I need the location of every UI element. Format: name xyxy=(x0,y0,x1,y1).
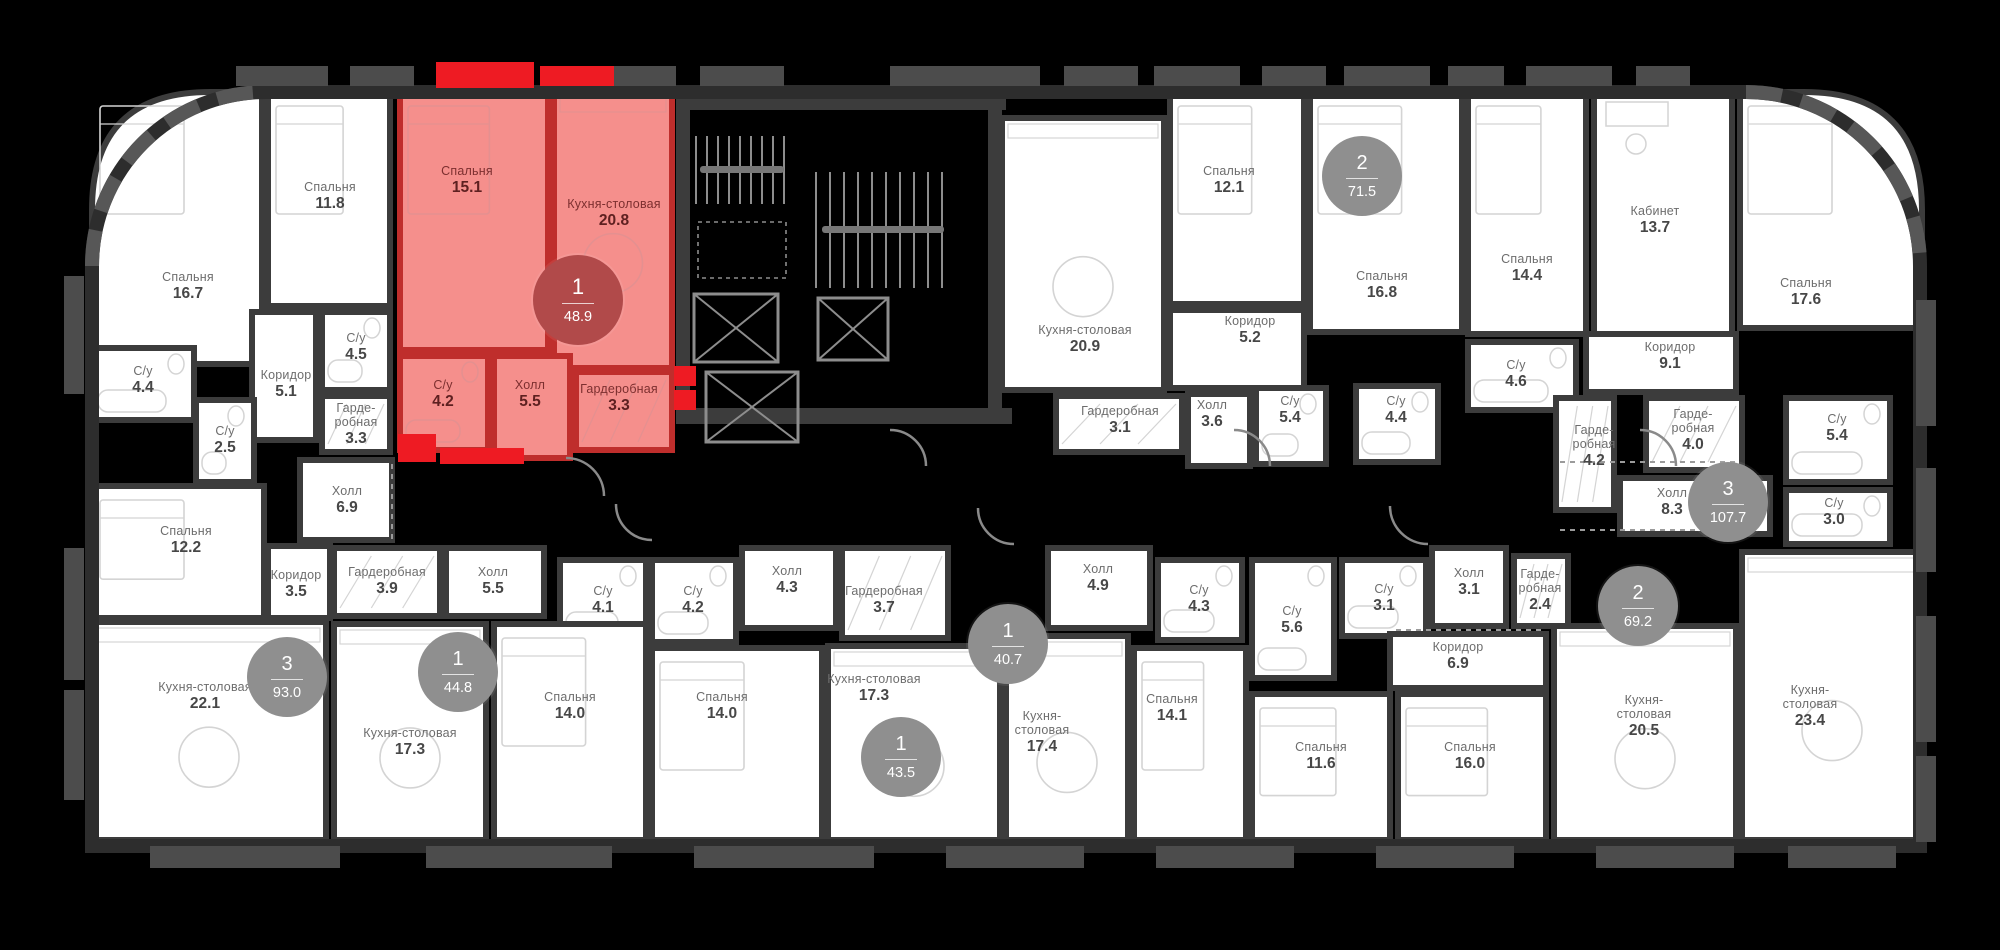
badge-divider xyxy=(1712,504,1744,505)
apartment-badge-48.9[interactable]: 148.9 xyxy=(533,255,623,345)
badge-divider xyxy=(992,646,1024,647)
badge-area: 107.7 xyxy=(1710,510,1746,526)
badge-divider xyxy=(442,674,474,675)
badge-rooms-count: 2 xyxy=(1356,153,1367,173)
badge-rooms-count: 2 xyxy=(1632,583,1643,603)
badge-area: 48.9 xyxy=(564,309,592,325)
apartment-badges: 393.0148.9144.8143.5140.7271.5269.23107.… xyxy=(0,0,2000,950)
badge-rooms-count: 1 xyxy=(895,734,906,754)
apartment-badge-43.5[interactable]: 143.5 xyxy=(861,717,941,797)
badge-area: 93.0 xyxy=(273,685,301,701)
badge-rooms-count: 1 xyxy=(572,276,584,298)
apartment-badge-93.0[interactable]: 393.0 xyxy=(247,637,327,717)
badge-divider xyxy=(885,759,917,760)
badge-rooms-count: 1 xyxy=(1002,621,1013,641)
badge-divider xyxy=(1346,178,1378,179)
badge-area: 43.5 xyxy=(887,765,915,781)
badge-rooms-count: 3 xyxy=(281,654,292,674)
apartment-badge-44.8[interactable]: 144.8 xyxy=(418,632,498,712)
apartment-badge-107.7[interactable]: 3107.7 xyxy=(1688,462,1768,542)
badge-area: 69.2 xyxy=(1624,614,1652,630)
apartment-badge-69.2[interactable]: 269.2 xyxy=(1598,566,1678,646)
badge-area: 44.8 xyxy=(444,680,472,696)
badge-divider xyxy=(271,679,303,680)
badge-rooms-count: 3 xyxy=(1722,479,1733,499)
badge-area: 71.5 xyxy=(1348,184,1376,200)
badge-rooms-count: 1 xyxy=(452,649,463,669)
floor-plan: Спальня16.7Спальня11.8С/у4.4С/у4.5Коридо… xyxy=(0,0,2000,950)
badge-divider xyxy=(1622,608,1654,609)
badge-divider xyxy=(562,303,594,304)
badge-area: 40.7 xyxy=(994,652,1022,668)
apartment-badge-71.5[interactable]: 271.5 xyxy=(1322,136,1402,216)
apartment-badge-40.7[interactable]: 140.7 xyxy=(968,604,1048,684)
